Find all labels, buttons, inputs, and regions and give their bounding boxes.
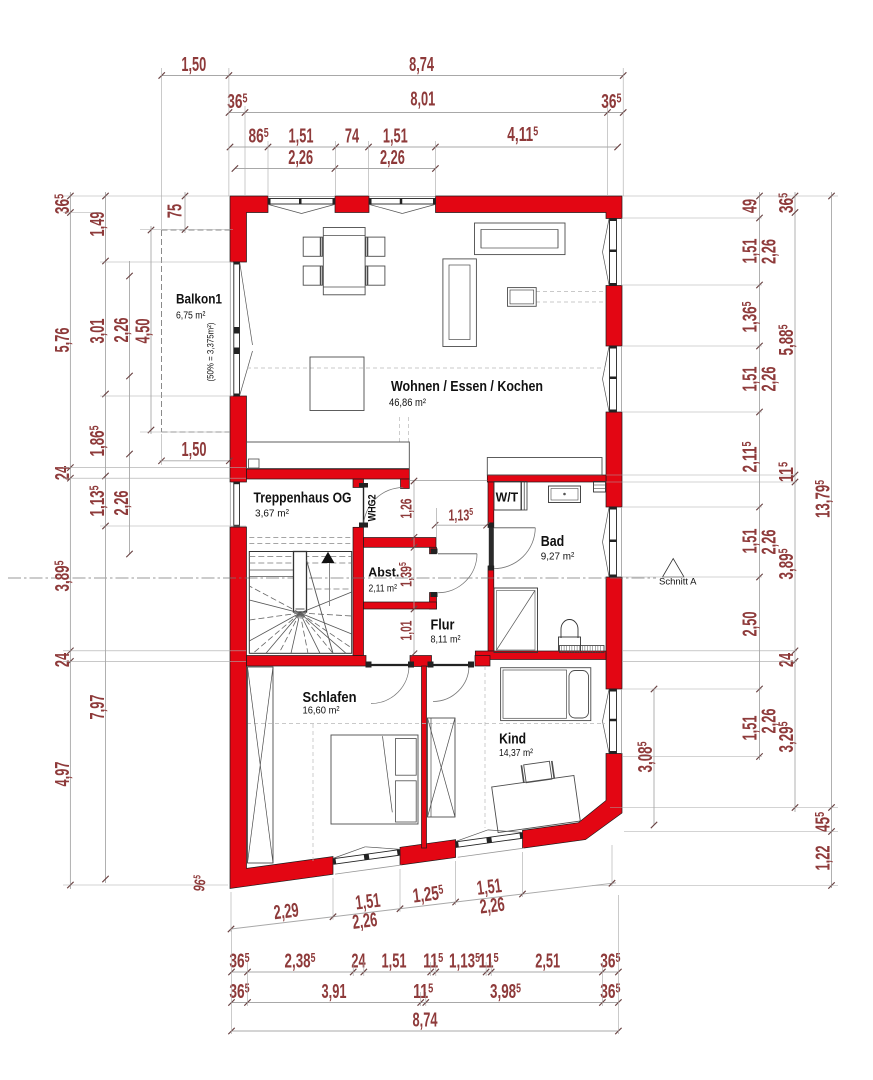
- svg-text:2,29: 2,29: [273, 899, 300, 924]
- svg-text:1,01: 1,01: [399, 620, 416, 640]
- svg-text:16,60 m²: 16,60 m²: [303, 705, 340, 717]
- svg-text:8,01: 8,01: [410, 89, 435, 111]
- svg-text:8,74: 8,74: [409, 54, 434, 76]
- svg-text:WHG2: WHG2: [366, 494, 378, 521]
- svg-text:3,67 m²: 3,67 m²: [255, 508, 289, 520]
- svg-text:13,795: 13,795: [812, 480, 835, 518]
- svg-text:2,26: 2,26: [759, 239, 781, 264]
- svg-text:Treppenhaus OG: Treppenhaus OG: [254, 491, 352, 507]
- svg-text:1,22: 1,22: [813, 846, 835, 871]
- svg-text:5,76: 5,76: [52, 328, 74, 353]
- svg-text:Wohnen / Essen / Kochen: Wohnen / Essen / Kochen: [391, 379, 543, 395]
- svg-text:1,51: 1,51: [383, 126, 408, 148]
- svg-text:75: 75: [165, 204, 187, 218]
- svg-text:9,27 m²: 9,27 m²: [541, 551, 575, 563]
- svg-text:6,75 m²: 6,75 m²: [176, 311, 206, 322]
- svg-text:2,26: 2,26: [288, 147, 313, 169]
- svg-text:4,97: 4,97: [52, 762, 74, 787]
- svg-text:2,26: 2,26: [380, 147, 405, 169]
- svg-text:3,01: 3,01: [87, 319, 109, 344]
- svg-text:W/T: W/T: [496, 490, 519, 505]
- svg-text:24: 24: [776, 652, 798, 667]
- svg-text:Abst.: Abst.: [368, 565, 399, 580]
- svg-text:4,50: 4,50: [133, 319, 155, 344]
- svg-text:1,51: 1,51: [382, 951, 407, 973]
- svg-text:2,26: 2,26: [479, 894, 506, 919]
- svg-text:8,11 m²: 8,11 m²: [431, 634, 461, 646]
- svg-text:3,91: 3,91: [322, 981, 347, 1003]
- svg-text:1,49: 1,49: [87, 212, 109, 237]
- svg-text:Flur: Flur: [431, 618, 455, 634]
- svg-text:1,51: 1,51: [289, 126, 314, 148]
- svg-text:2,51: 2,51: [535, 951, 560, 973]
- svg-text:2,26: 2,26: [351, 909, 378, 934]
- svg-text:Kind: Kind: [499, 732, 526, 748]
- svg-text:Balkon1: Balkon1: [176, 292, 222, 307]
- svg-text:8,74: 8,74: [413, 1010, 438, 1032]
- svg-text:Bad: Bad: [541, 534, 565, 550]
- svg-text:1,255: 1,255: [412, 882, 445, 908]
- svg-text:2,26: 2,26: [111, 318, 133, 343]
- svg-text:46,86 m²: 46,86 m²: [389, 397, 426, 409]
- svg-text:1,50: 1,50: [181, 54, 206, 76]
- svg-text:(50% = 3,375m²): (50% = 3,375m²): [206, 323, 217, 382]
- svg-text:74: 74: [345, 126, 360, 148]
- svg-text:49: 49: [740, 199, 762, 213]
- svg-text:1,26: 1,26: [399, 498, 416, 518]
- svg-text:1,50: 1,50: [182, 439, 207, 461]
- svg-text:24: 24: [52, 652, 74, 667]
- svg-text:7,97: 7,97: [87, 695, 109, 720]
- svg-text:2,26: 2,26: [759, 367, 781, 392]
- svg-text:14,37 m²: 14,37 m²: [499, 747, 533, 759]
- svg-text:2,11 m²: 2,11 m²: [368, 584, 397, 595]
- svg-text:Schnitt A: Schnitt A: [659, 577, 697, 588]
- svg-text:2,50: 2,50: [740, 612, 762, 637]
- svg-text:2,26: 2,26: [111, 491, 133, 516]
